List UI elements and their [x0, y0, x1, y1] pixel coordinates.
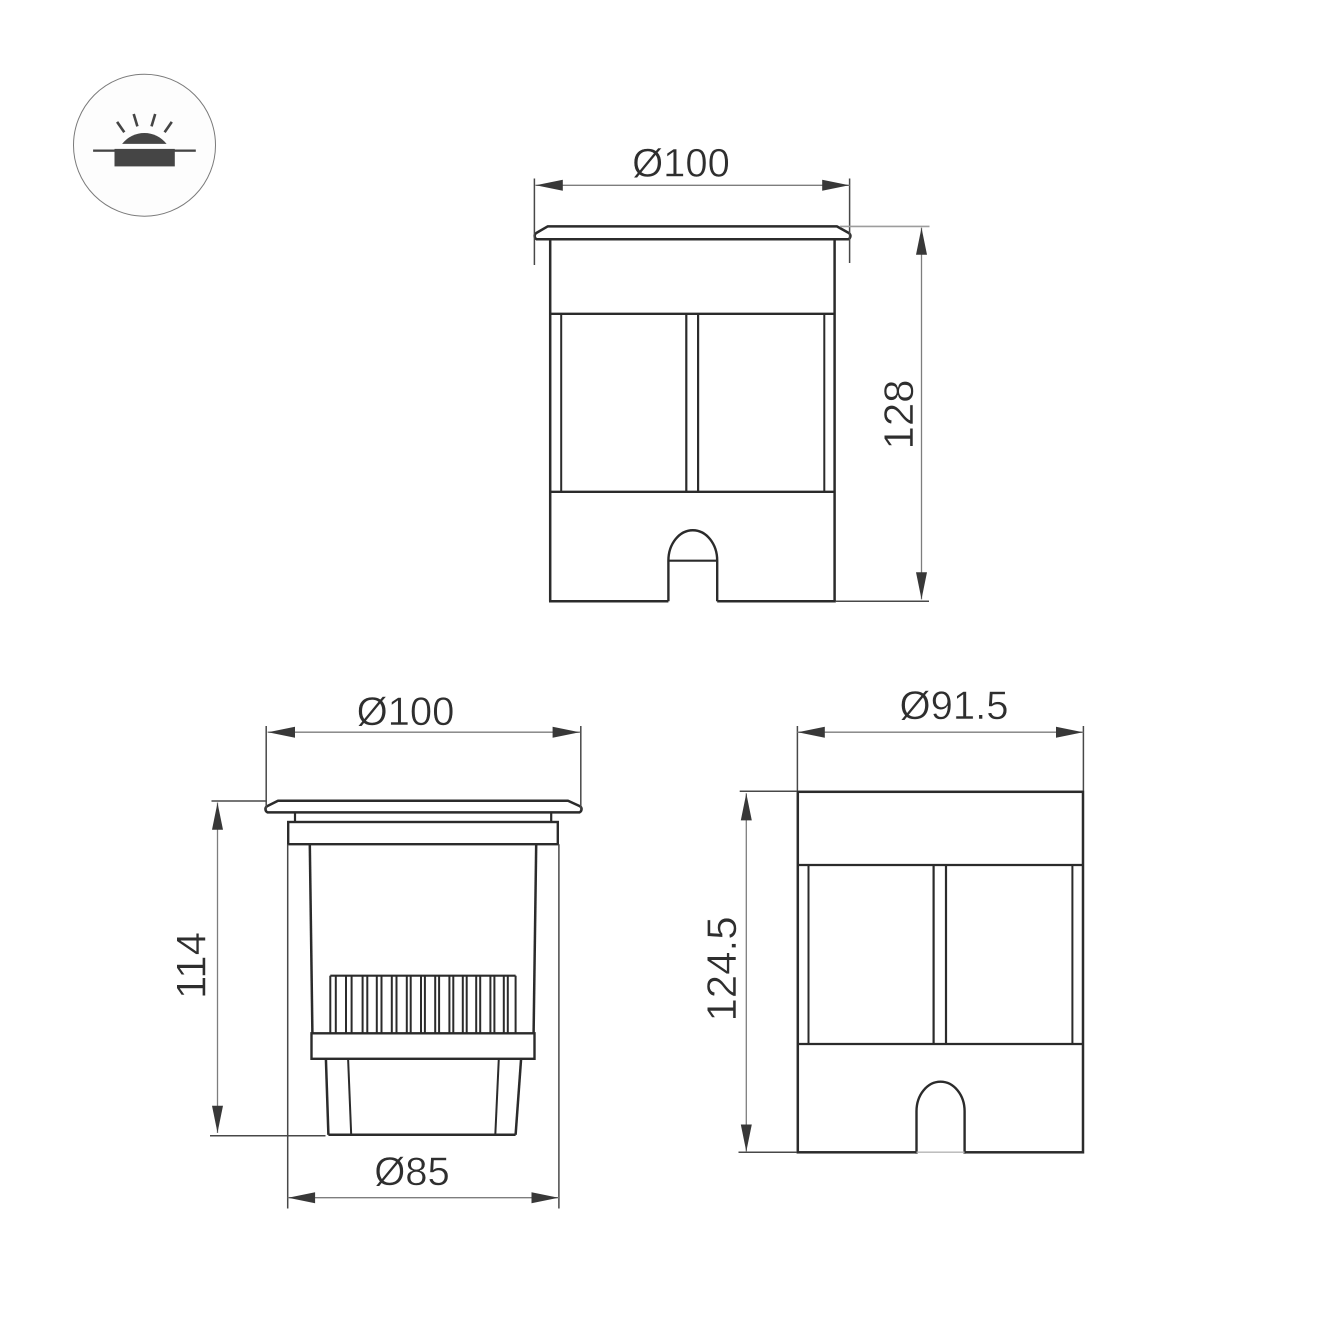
svg-text:114: 114	[168, 932, 215, 999]
svg-text:124.5: 124.5	[698, 916, 745, 1021]
svg-text:Ø85: Ø85	[374, 1150, 450, 1194]
svg-text:Ø91.5: Ø91.5	[900, 684, 1009, 728]
svg-text:Ø100: Ø100	[357, 690, 455, 734]
svg-text:128: 128	[875, 379, 922, 449]
svg-text:Ø100: Ø100	[632, 142, 730, 186]
